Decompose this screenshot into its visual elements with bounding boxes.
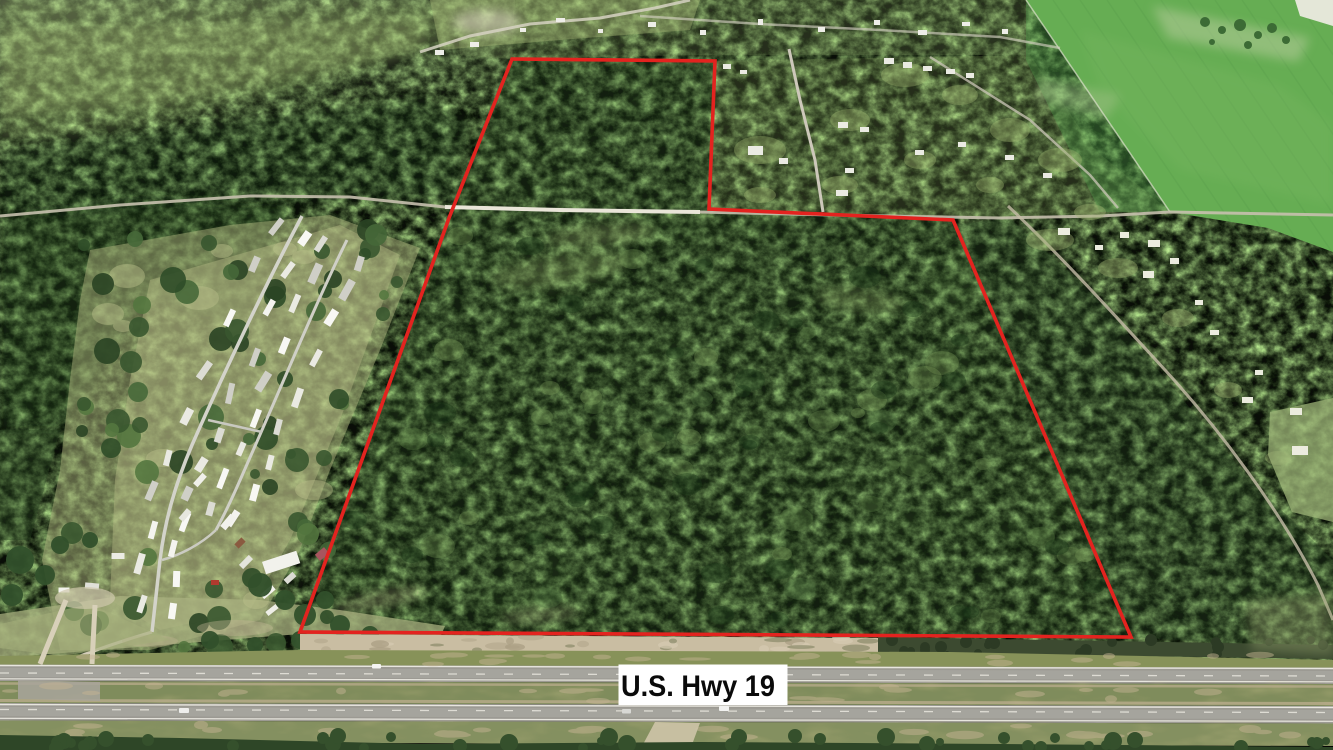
svg-text:U.S. Hwy 19: U.S. Hwy 19 <box>621 670 775 703</box>
